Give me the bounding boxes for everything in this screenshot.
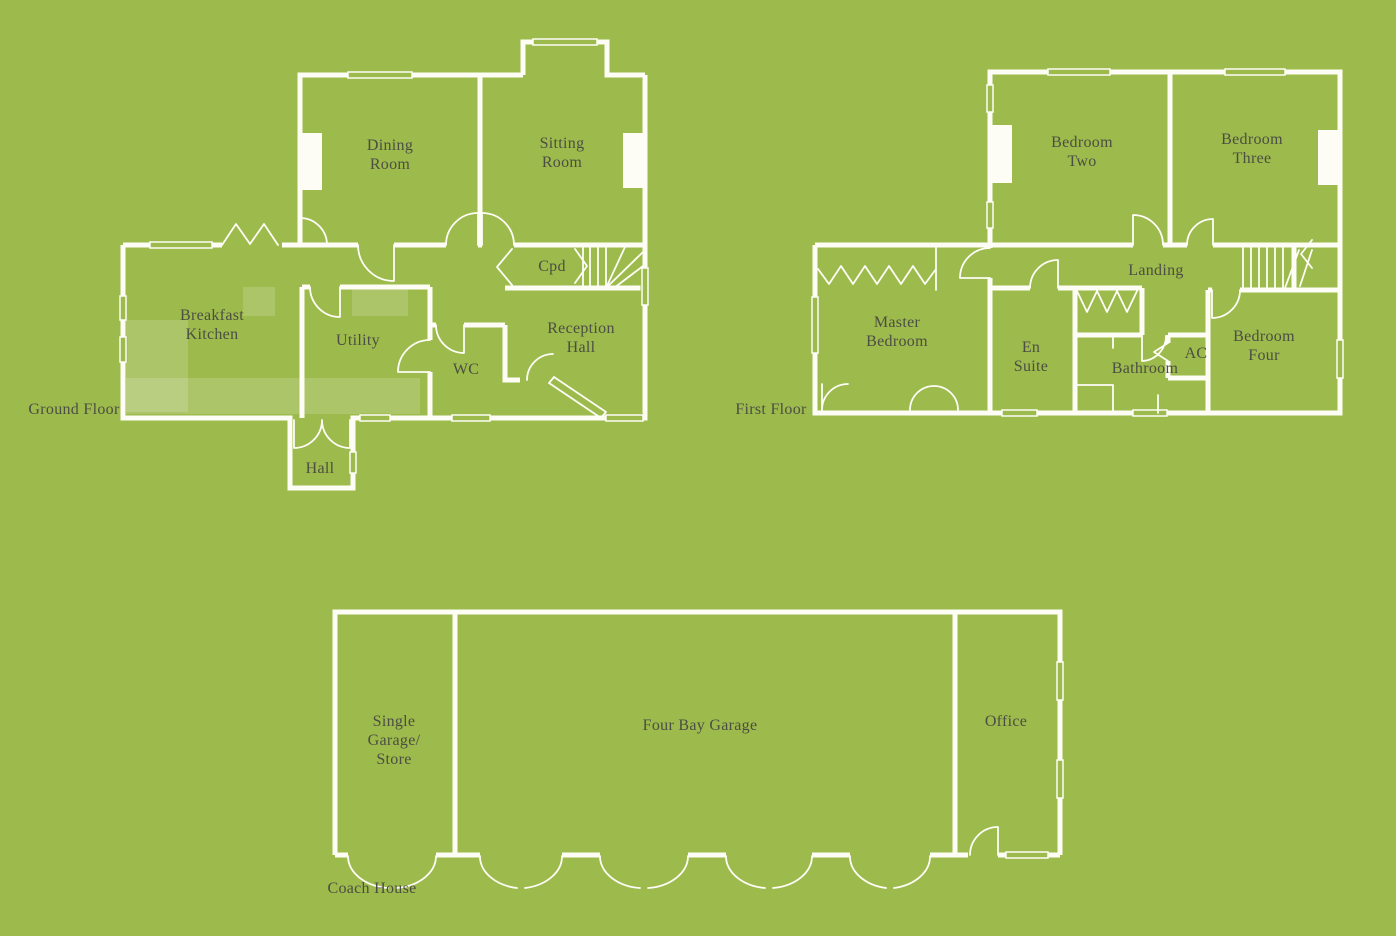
room-label-master-2: Bedroom <box>866 333 928 350</box>
room-label-office: Office <box>985 713 1027 730</box>
room-label-cpd: Cpd <box>538 258 566 275</box>
room-label-hall: Hall <box>306 460 335 477</box>
room-label-ac: AC <box>1185 345 1208 362</box>
fireplace-dining <box>298 133 322 190</box>
room-label-wc: WC <box>453 361 479 378</box>
floor-label-coach-house: Coach House <box>327 880 416 897</box>
room-label-sitting-2: Room <box>542 154 583 171</box>
room-label-reception-2: Hall <box>567 339 596 356</box>
room-label-bedroom-three-2: Three <box>1233 150 1272 167</box>
floor-label-first: First Floor <box>735 401 807 418</box>
room-label-bathroom: Bathroom <box>1112 360 1179 377</box>
room-label-bedroom-two-1: Bedroom <box>1051 134 1113 151</box>
room-label-bedroom-four-1: Bedroom <box>1233 328 1295 345</box>
fireplace-bedroom-two <box>990 125 1012 183</box>
room-label-single-garage-1: Single <box>373 713 416 730</box>
room-label-dining-1: Dining <box>367 137 413 154</box>
fireplace-sitting <box>623 133 647 188</box>
floor-label-ground: Ground Floor <box>28 401 120 418</box>
background <box>0 0 1396 936</box>
room-label-ensuite-2: Suite <box>1014 358 1048 375</box>
room-label-bedroom-three-1: Bedroom <box>1221 131 1283 148</box>
room-label-sitting-1: Sitting <box>540 135 585 152</box>
room-label-master-1: Master <box>874 314 921 331</box>
room-label-kitchen-1: Breakfast <box>180 307 244 324</box>
room-label-bedroom-four-2: Four <box>1248 347 1280 364</box>
room-label-single-garage-2: Garage/ <box>368 732 421 749</box>
room-label-ensuite-1: En <box>1022 339 1040 356</box>
room-label-bedroom-two-2: Two <box>1067 153 1096 170</box>
room-label-single-garage-3: Store <box>376 751 411 768</box>
floorplan-image: Dining Room Sitting Room Breakfast Kitch… <box>0 0 1396 936</box>
room-label-landing: Landing <box>1128 262 1183 279</box>
room-label-kitchen-2: Kitchen <box>186 326 239 343</box>
room-label-utility: Utility <box>336 332 380 349</box>
room-label-dining-2: Room <box>370 156 411 173</box>
room-label-four-bay-garage: Four Bay Garage <box>643 717 758 734</box>
fireplace-bedroom-three <box>1318 130 1340 185</box>
room-label-reception-1: Reception <box>547 320 615 337</box>
